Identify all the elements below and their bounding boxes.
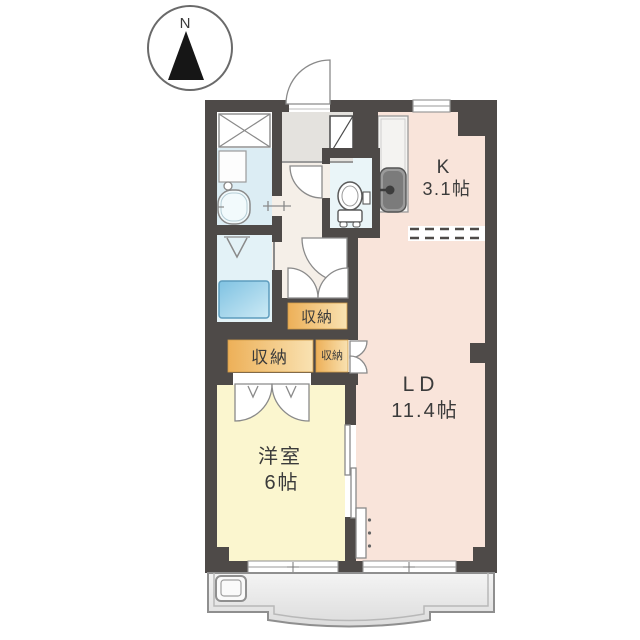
ld-window (363, 561, 456, 573)
sliding-leaf-1 (345, 425, 350, 475)
western-room-name-label: 洋室 (258, 445, 302, 468)
pillar-bottom-right (473, 547, 485, 561)
floorplan-svg: K 3.1帖 LD 11.4帖 洋室 6帖 収納 収納 収納 N (0, 0, 640, 640)
compass: N (148, 6, 232, 90)
bath-counter (219, 151, 246, 182)
entrance-door-swing (286, 60, 330, 104)
bedroom-closet-label: 収納 (251, 348, 289, 367)
western-room-window (248, 561, 338, 573)
kitchen-window (413, 100, 450, 112)
kitchen-name-label: K (437, 157, 452, 178)
closet2-door-opening (233, 373, 311, 385)
slop-sink-icon (216, 576, 246, 601)
pillar-bottom-left (217, 547, 229, 561)
pillar-top-right (458, 112, 485, 136)
kitchen-ld-dashed-boundary (408, 226, 485, 241)
western-room-area-label: 6帖 (264, 471, 299, 494)
ld-closet-label: 収納 (321, 349, 343, 362)
compass-north-label: N (180, 15, 191, 32)
toilet-door-opening (322, 164, 330, 198)
floorplan-page: K 3.1帖 LD 11.4帖 洋室 6帖 収納 収納 収納 N (0, 0, 640, 640)
washer-pan (219, 281, 269, 318)
wall-bath-washroom (217, 225, 272, 235)
bathtub (218, 190, 250, 224)
wall-toilet-right (372, 158, 380, 228)
wall-left (205, 112, 217, 573)
hall-ld-door-opening (300, 228, 322, 238)
balcony-outline (208, 573, 494, 627)
sliding-leaf-2 (351, 468, 356, 518)
bath-faucet-icon (224, 182, 232, 190)
pillar-right-mid (470, 343, 485, 363)
sliding-leaf-pocket (356, 508, 366, 558)
sink-faucet-icon (386, 186, 395, 195)
kitchen-area-label: 3.1帖 (422, 179, 471, 199)
wall-right (485, 112, 497, 573)
ld-area-label: 11.4帖 (391, 399, 458, 422)
ld-name-label: LD (403, 373, 440, 396)
balcony (208, 573, 494, 627)
hall-closet-label: 収納 (301, 309, 333, 326)
wall-toilet-top (322, 148, 380, 158)
kitchen-sink (380, 168, 406, 212)
wall-hall-left (272, 112, 282, 332)
crossed-service-box (219, 114, 270, 147)
wall-top (205, 100, 497, 112)
